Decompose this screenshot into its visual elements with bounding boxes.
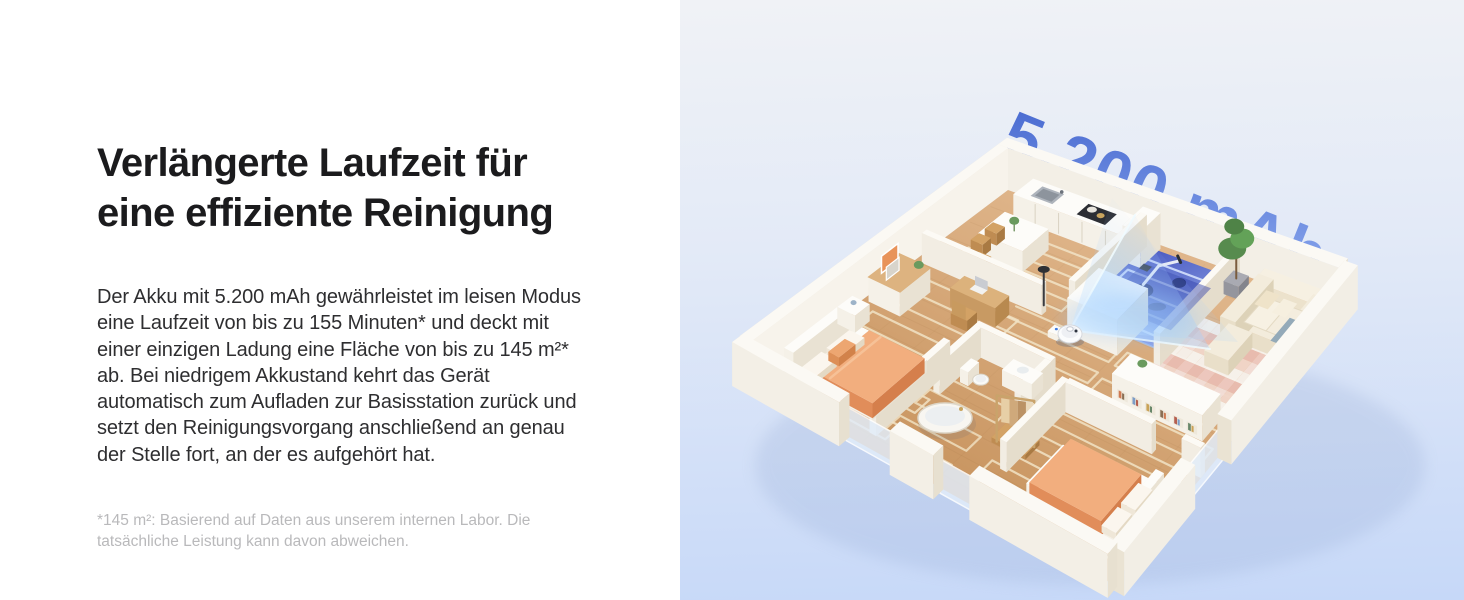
copy-block: Verlängerte Laufzeit für eine effiziente…: [97, 138, 662, 552]
disclaimer-footnote: *145 m²: Basierend auf Daten aus unserem…: [97, 510, 662, 552]
floorplan-illustration: 5.200 mAh: [680, 0, 1464, 600]
feature-heading: Verlängerte Laufzeit für eine effiziente…: [97, 138, 662, 238]
robot-vacuum: [1056, 325, 1084, 347]
text-panel: Verlängerte Laufzeit für eine effiziente…: [0, 0, 680, 600]
illustration-panel: 5.200 mAh: [680, 0, 1464, 600]
product-feature-section: Verlängerte Laufzeit für eine effiziente…: [0, 0, 1464, 600]
feature-body-text: Der Akku mit 5.200 mAh gewährleistet im …: [97, 284, 662, 468]
